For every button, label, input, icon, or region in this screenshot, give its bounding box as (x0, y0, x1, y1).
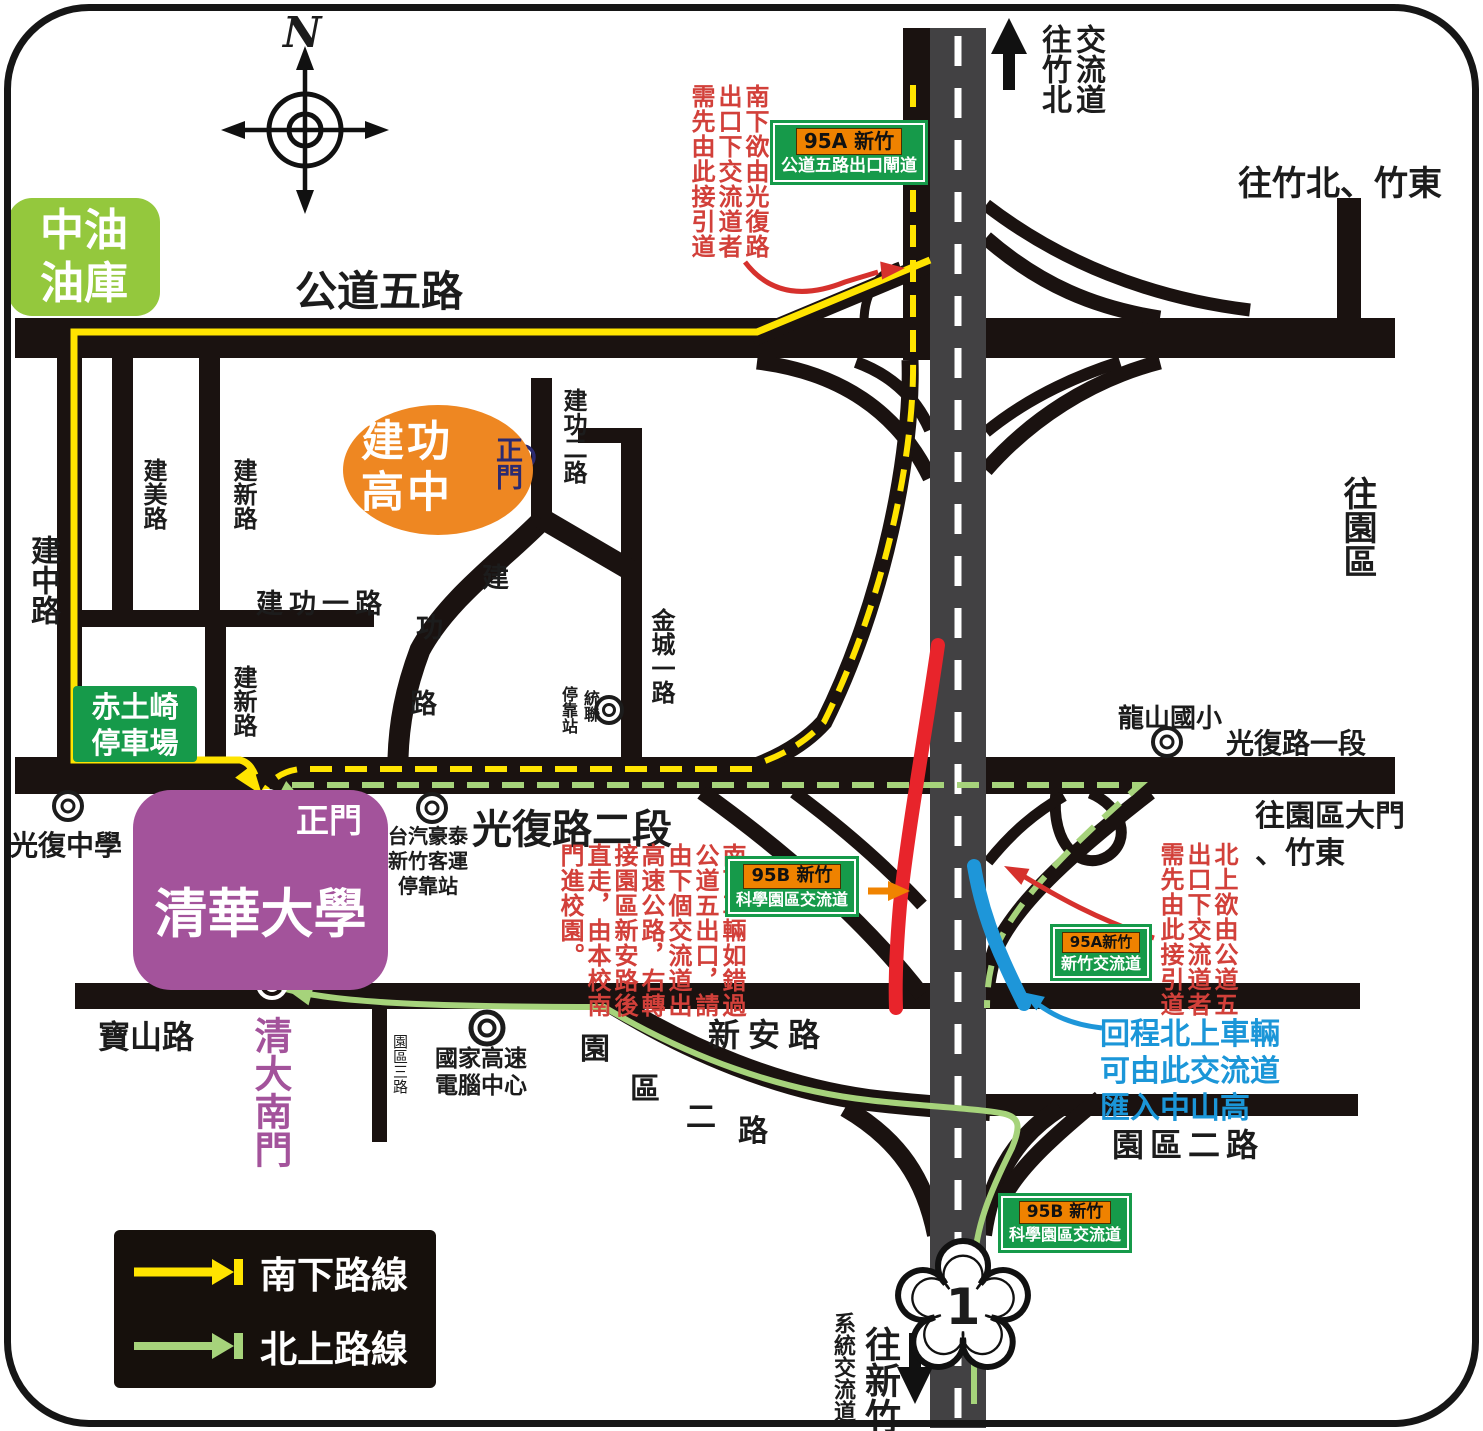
ubus-stop-col-right: 統聯 (578, 690, 602, 726)
compass-north-label: N (283, 8, 321, 57)
return-north-line1: 回程北上車輛 (1100, 1016, 1280, 1053)
to-park-gate-label: 往園區大門 、竹東 (1255, 798, 1405, 872)
ubus-stop-col-left: 停靠站 (556, 686, 580, 740)
gongdao5-label: 公道五路 (295, 258, 463, 319)
highway-number: 1 (940, 1278, 986, 1336)
southbound-guangfu-exit-note: 南下欲由光復路出口下交流道者需先由此接引道 (687, 84, 768, 264)
sign-hsinchu-ic-code: 95A新竹 (1062, 932, 1140, 953)
taiqi-stop-line3: 停靠站 (388, 874, 468, 899)
to-zhubei-interchange-label: 交流道往竹北 (1036, 24, 1104, 128)
park2-char4: 路 (738, 1106, 768, 1150)
return-north-note: 回程北上車輛 可由此交流道 匯入中山高 (1100, 1016, 1280, 1127)
legend: 南下路線 北上路線 (114, 1230, 436, 1388)
legend-southbound-label: 南下路線 (260, 1245, 408, 1299)
chitu-parking-line2: 停車場 (73, 725, 197, 761)
park3-label: 園區三路 (390, 1034, 411, 1098)
nchc-line2: 電腦中心 (435, 1073, 527, 1100)
chitu-parking-line1: 赤土崎 (73, 689, 197, 725)
jiangong-gate-label: 正門 (487, 436, 526, 516)
guangfu-hs-circle-icon (54, 792, 82, 820)
jincheng1-label: 金城一路 (644, 608, 679, 704)
system-interchange-label: 系統交流道 (826, 1312, 858, 1431)
chitu-parking-box: 赤土崎 停車場 (73, 686, 197, 762)
sign-hsinchu-ic: 95A新竹 新竹交流道 (1050, 924, 1152, 981)
cpc-depot-line2: 油庫 (8, 257, 160, 310)
southbound-missed-exit-note: 南下車輛如錯過公道五出口，請由下個交流道出高速公路，右轉接園區新安路後直走，由本… (556, 843, 745, 1023)
sign-science-park-bottom-name: 科學園區交流道 (1009, 1226, 1121, 1244)
to-park-label: 往園區 (1333, 476, 1382, 588)
sign-gongdao-exit-name: 公道五路出口閘道 (781, 157, 917, 177)
nthu-south-gate-label: 清大南門 (243, 1016, 298, 1186)
sign-hsinchu-ic-name: 新竹交流道 (1061, 955, 1141, 973)
jiangong-road-char1: 建 (482, 556, 509, 595)
legend-northbound-label: 北上路線 (260, 1319, 408, 1373)
sign-science-park-bottom: 95B 新竹 科學園區交流道 (998, 1193, 1132, 1253)
north-up-arrow-icon (1003, 52, 1015, 90)
to-park-gate-line2: 、竹東 (1255, 835, 1405, 872)
jiangong-road-char2: 功 (416, 606, 443, 645)
jiangong2-label: 建功二路 (556, 388, 591, 498)
to-zhubei-zhudong-label: 往竹北、竹東 (1238, 156, 1442, 205)
jiangong-hs-line1: 建功 (361, 417, 453, 468)
jiangong-road-char3: 路 (410, 682, 437, 721)
sign-science-park-mid-name: 科學園區交流道 (736, 891, 848, 909)
jianxin-upper-label: 建新路 (226, 458, 261, 542)
baoshan-label: 寶山路 (98, 1012, 194, 1058)
route-map: 中油 油庫 建功 高中 正門 赤土崎 停車場 清華大學 正門 清大南門 N 公道… (0, 0, 1483, 1431)
legend-southbound-row: 南下路線 (132, 1245, 436, 1299)
taiqi-stop-line1: 台汽豪泰 (388, 824, 468, 849)
cpc-depot-line1: 中油 (8, 204, 160, 257)
taiqi-stop-line2: 新竹客運 (388, 849, 468, 874)
sign-science-park-mid: 95B 新竹 科學園區交流道 (725, 856, 859, 917)
guangfu-hs-label: 光復中學 (10, 824, 122, 864)
to-park-gate-line1: 往園區大門 (1255, 798, 1405, 835)
cpc-depot-box: 中油 油庫 (8, 198, 160, 316)
return-north-line3: 匯入中山高 (1100, 1090, 1280, 1127)
northbound-legend-arrow-icon (132, 1329, 250, 1363)
sign-science-park-bottom-code: 95B 新竹 (1019, 1201, 1112, 1224)
red-leader-arrow-right-icon (1000, 858, 1030, 885)
park2-char1: 園 (580, 1024, 610, 1068)
longshan-es-label: 龍山國小 (1118, 698, 1222, 735)
jianxin-lower-label: 建新路 (226, 665, 261, 749)
park2-char2: 區 (630, 1064, 660, 1108)
sign-science-park-mid-code: 95B 新竹 (743, 864, 840, 889)
jiangong1-label: 建功一路 (256, 582, 388, 621)
to-hsinchu-label: 往新竹 (853, 1326, 905, 1431)
nthu-name: 清華大學 (133, 872, 388, 948)
nchc-line1: 國家高速 (435, 1046, 527, 1073)
southbound-legend-arrow-icon (132, 1255, 250, 1289)
legend-northbound-row: 北上路線 (132, 1319, 436, 1373)
jianmei-label: 建美路 (136, 458, 171, 542)
jianzhong-label: 建中路 (20, 535, 64, 643)
taiqi-stop-label: 台汽豪泰 新竹客運 停靠站 (388, 824, 468, 899)
sign-gongdao-exit: 95A 新竹 公道五路出口閘道 (770, 120, 928, 185)
jiangong-hs-line2: 高中 (361, 468, 453, 519)
sign-gongdao-exit-code: 95A 新竹 (796, 128, 902, 155)
nchc-label: 國家高速 電腦中心 (435, 1046, 527, 1100)
nchc-circle-icon (471, 1012, 503, 1044)
guangfu-sec1-label: 光復路一段 (1226, 722, 1366, 762)
return-north-line2: 可由此交流道 (1100, 1053, 1280, 1090)
nthu-main-gate-label: 正門 (296, 794, 362, 842)
taiqi-stop-circle-icon (418, 794, 446, 822)
compass-icon (233, 58, 377, 202)
northbound-gongdao-exit-note: 北上欲由公道五出口下交流道者需先由此接引道 (1156, 842, 1237, 1022)
park2-char3: 二 (686, 1092, 716, 1136)
